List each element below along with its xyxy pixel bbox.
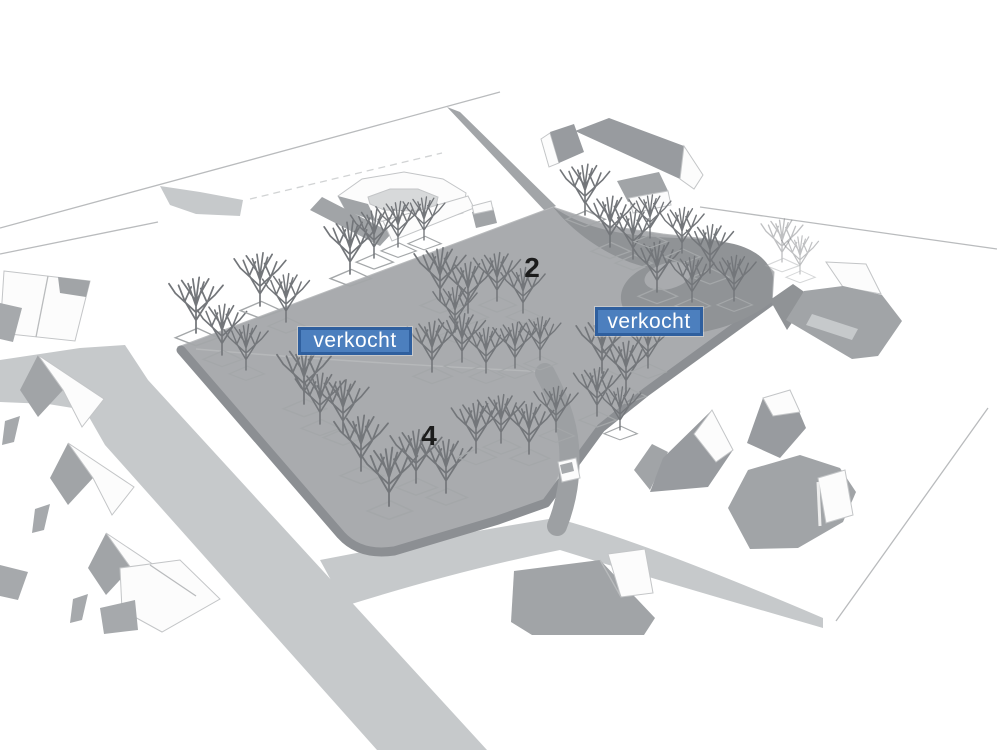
sold-badge-label: verkocht — [607, 310, 690, 334]
sold-badge-plot-2: verkocht — [595, 307, 703, 336]
road-stub-top-left — [160, 186, 243, 216]
sold-badge-plot-4: verkocht — [298, 327, 412, 355]
tree-icon — [781, 236, 818, 283]
site-plan-stage: verkocht verkocht 2 4 — [0, 0, 1000, 750]
sold-badge-label: verkocht — [313, 329, 396, 353]
parked-vehicle — [558, 458, 580, 482]
site-plan-rendering — [0, 0, 1000, 750]
house-east — [786, 262, 902, 359]
house-cluster-southeast — [634, 390, 856, 549]
plot-number-2: 2 — [524, 252, 540, 284]
tree-icon — [234, 253, 286, 318]
plot-number-4: 4 — [421, 420, 437, 452]
house-top-right — [541, 118, 703, 213]
house-top-left — [0, 271, 90, 342]
house-south — [511, 549, 655, 635]
